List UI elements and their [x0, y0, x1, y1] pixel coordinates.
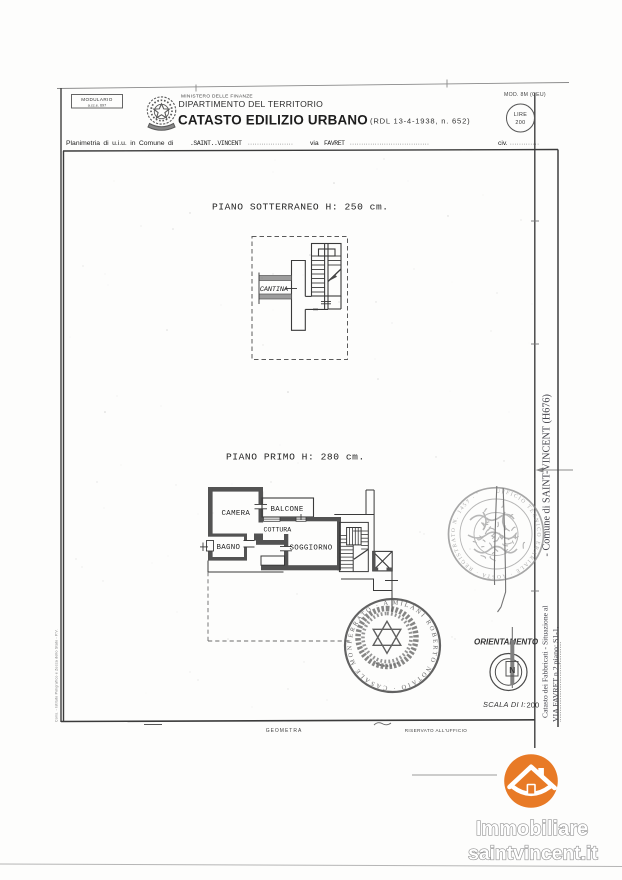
svg-text:PIANO PRIMO H: 280 cm.: PIANO PRIMO H: 280 cm.: [226, 452, 365, 463]
svg-text:- Comune di SAINT-VINCENT (H67: - Comune di SAINT-VINCENT (H676): [542, 394, 553, 556]
svg-text:Cons. - Istituto Poligrafico e: Cons. - Istituto Poligrafico e Zecca del…: [55, 629, 59, 722]
svg-text:DIPARTIMENTO DEL TERRITORIO: DIPARTIMENTO DEL TERRITORIO: [179, 99, 324, 109]
svg-text:ORIENTAMENTO: ORIENTAMENTO: [474, 638, 539, 647]
svg-text:MODULARIO: MODULARIO: [81, 97, 112, 102]
svg-text:200: 200: [515, 120, 525, 126]
svg-text:BALCONE: BALCONE: [271, 506, 304, 514]
svg-text:..............................: ........................................…: [555, 641, 563, 722]
svg-text:GEOMETRA: GEOMETRA: [266, 728, 303, 734]
svg-text:a.cc.e. 697: a.cc.e. 697: [88, 104, 107, 108]
svg-text:saintvincent.it: saintvincent.it: [468, 844, 598, 865]
svg-text:MOD. 8M (CEU): MOD. 8M (CEU): [504, 92, 546, 98]
svg-text:SCALA DI I:: SCALA DI I:: [483, 700, 526, 709]
svg-text:Planimetria di u.i.u. in Comun: Planimetria di u.i.u. in Comune di: [66, 140, 174, 147]
svg-text:civ.: civ.: [498, 140, 508, 147]
svg-text:..............................: ...................................: [350, 141, 429, 147]
svg-text:CANTINA: CANTINA: [259, 286, 289, 294]
svg-text:FAVRET: FAVRET: [324, 140, 345, 147]
svg-text:.............: .............: [510, 141, 539, 147]
svg-text:....................: ....................: [248, 141, 293, 147]
svg-text:Catasto dei Fabbricati - Situa: Catasto dei Fabbricati - Situazione al: [541, 606, 550, 718]
svg-text:via: via: [310, 140, 319, 147]
svg-text:CATASTO EDILIZIO URBANO: CATASTO EDILIZIO URBANO: [178, 113, 368, 128]
svg-text:N: N: [509, 665, 515, 675]
svg-text:CAMERA: CAMERA: [222, 510, 251, 518]
svg-text:Immobiliare: Immobiliare: [476, 818, 588, 840]
svg-text:200: 200: [527, 701, 540, 710]
svg-text:BAGNO: BAGNO: [217, 544, 241, 552]
svg-text:COTTURA: COTTURA: [264, 527, 292, 534]
svg-text:LIRE: LIRE: [514, 112, 528, 118]
svg-text:.SAINT..VINCENT: .SAINT..VINCENT: [190, 140, 242, 147]
svg-text:RISERVATO ALL'UFFICIO: RISERVATO ALL'UFFICIO: [405, 728, 468, 733]
svg-text:PIANO SOTTERRANEO H: 250 cm.: PIANO SOTTERRANEO H: 250 cm.: [212, 202, 389, 213]
svg-text:SOGGIORNO: SOGGIORNO: [290, 545, 333, 553]
svg-text:(RDL 13-4-1938, n. 652): (RDL 13-4-1938, n. 652): [370, 117, 470, 126]
